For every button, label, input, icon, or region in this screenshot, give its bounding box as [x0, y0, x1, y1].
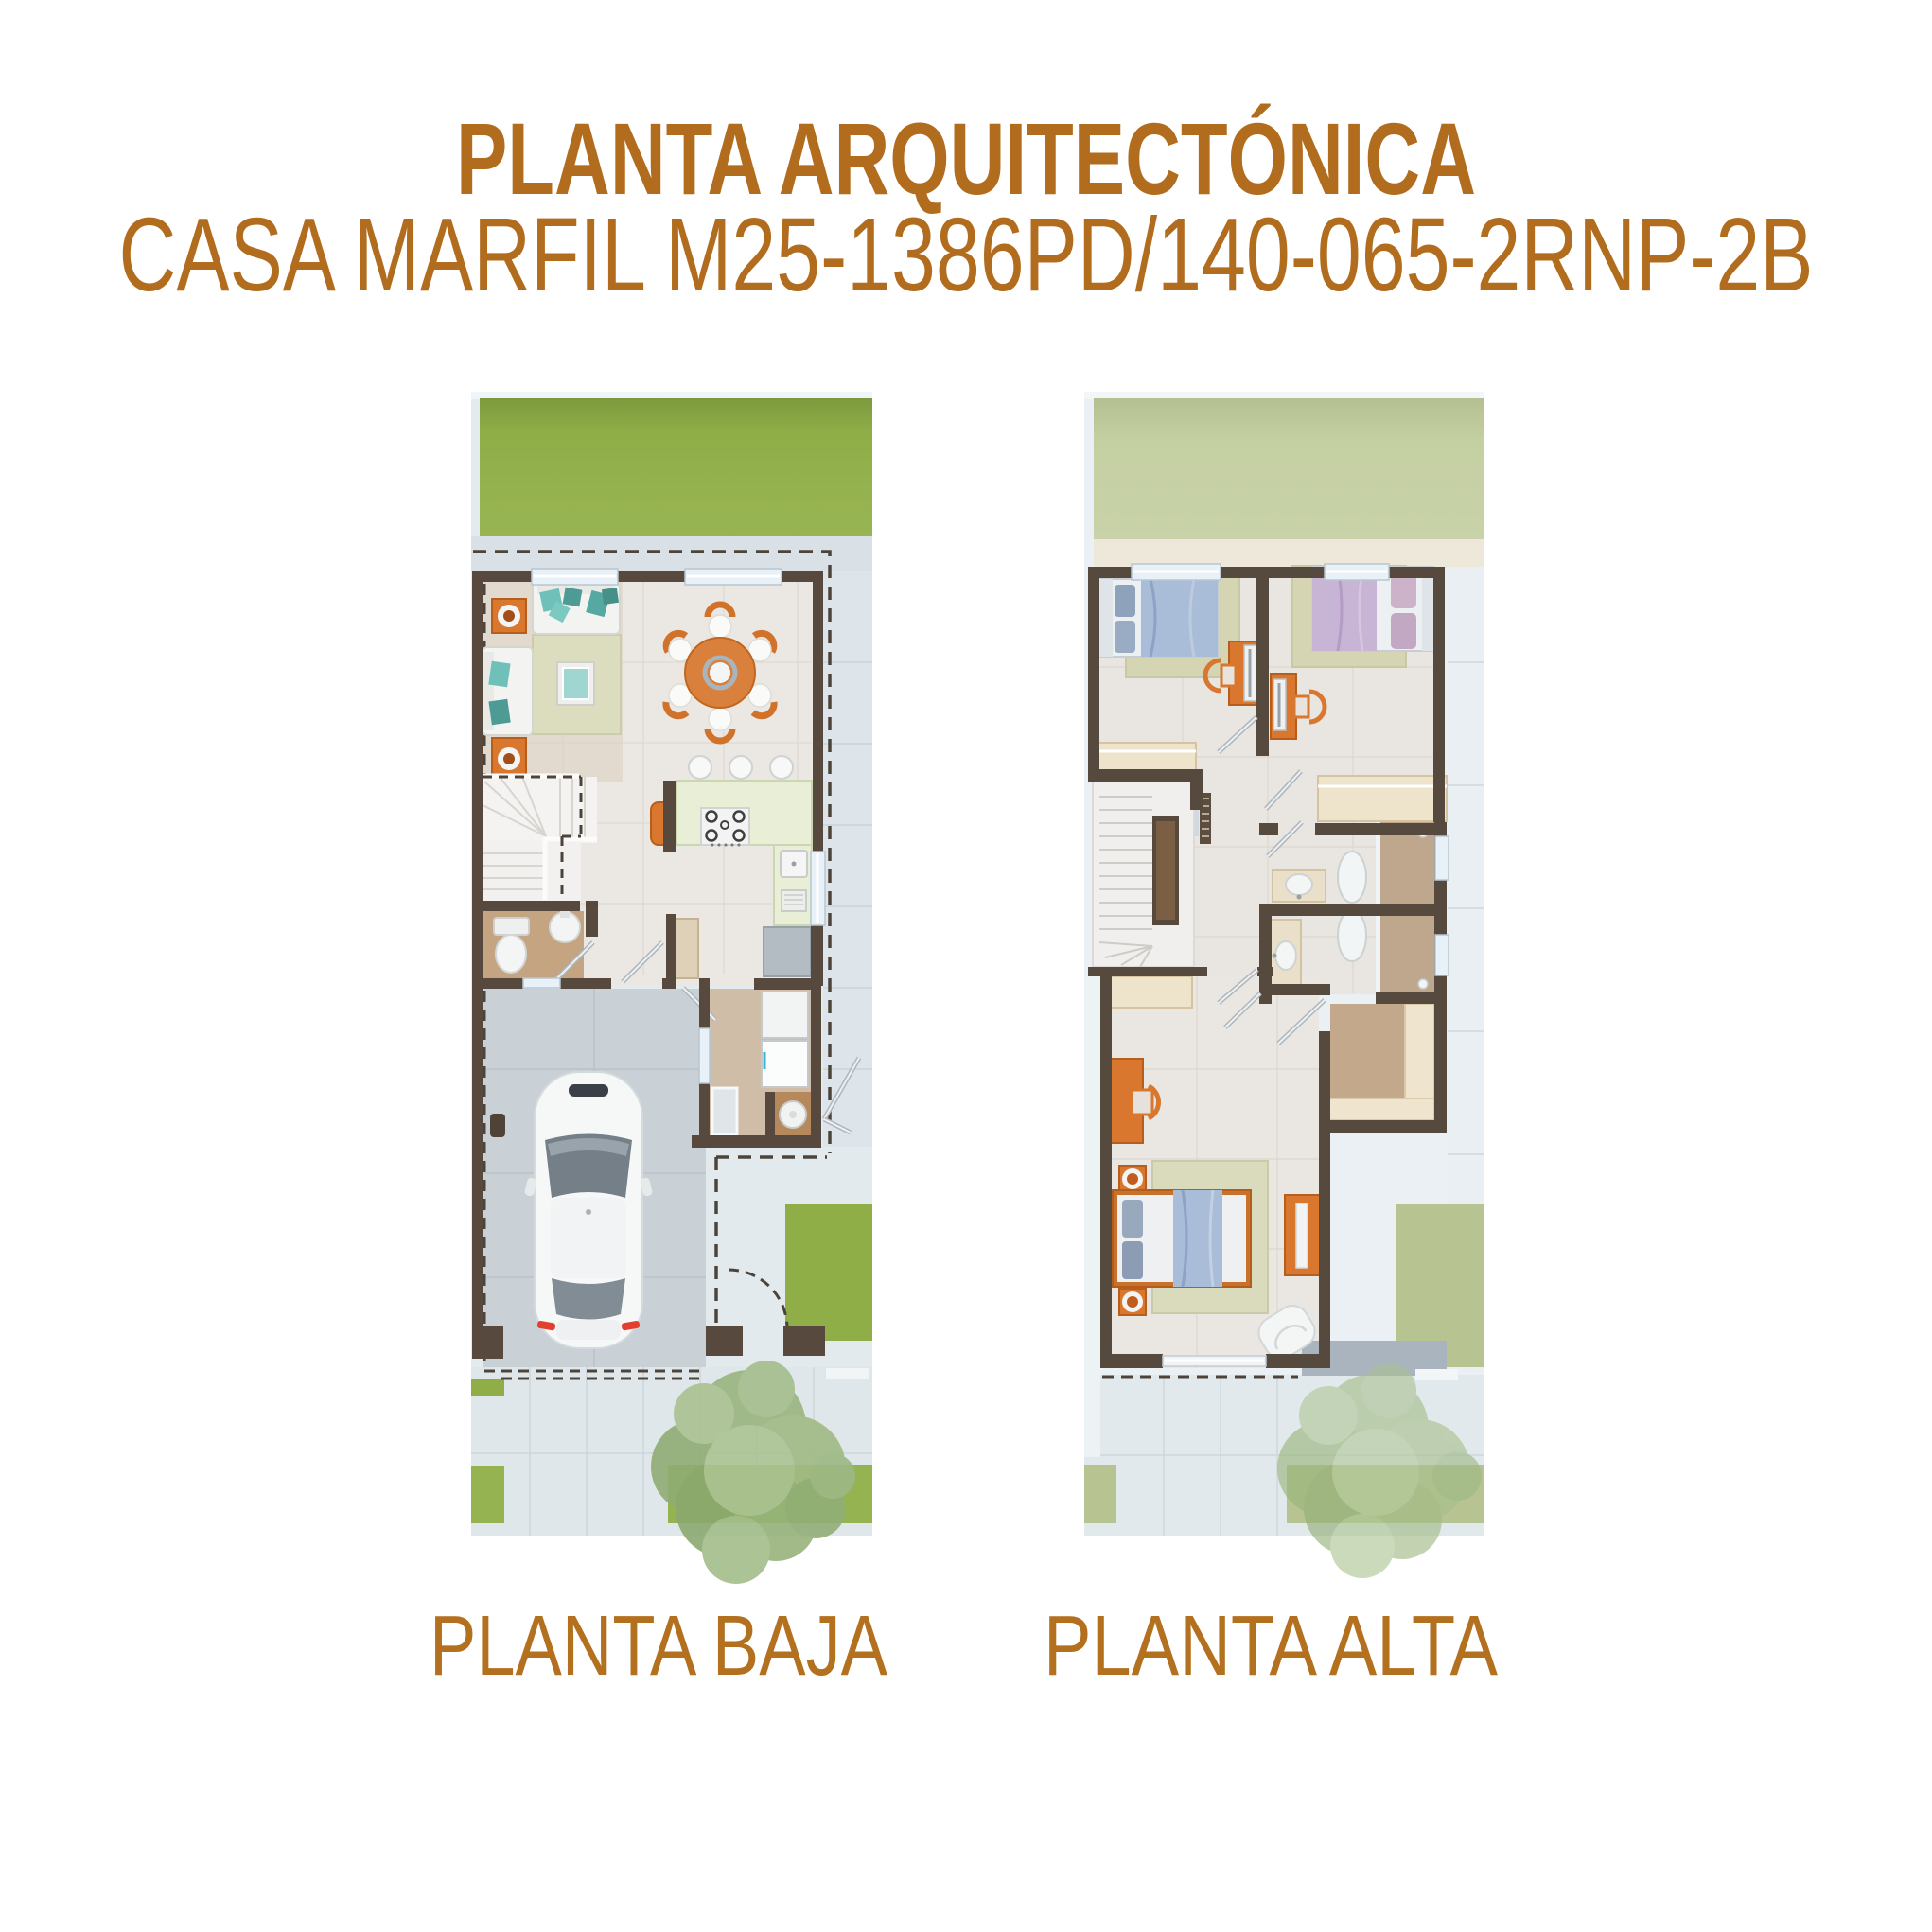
svg-text:PLANTA BAJA: PLANTA BAJA [430, 1599, 887, 1694]
svg-text:PLANTA ALTA: PLANTA ALTA [1044, 1599, 1498, 1694]
svg-text:CASA MARFIL M25-1386PD/140-065: CASA MARFIL M25-1386PD/140-065-2RNP-2B [119, 197, 1814, 313]
